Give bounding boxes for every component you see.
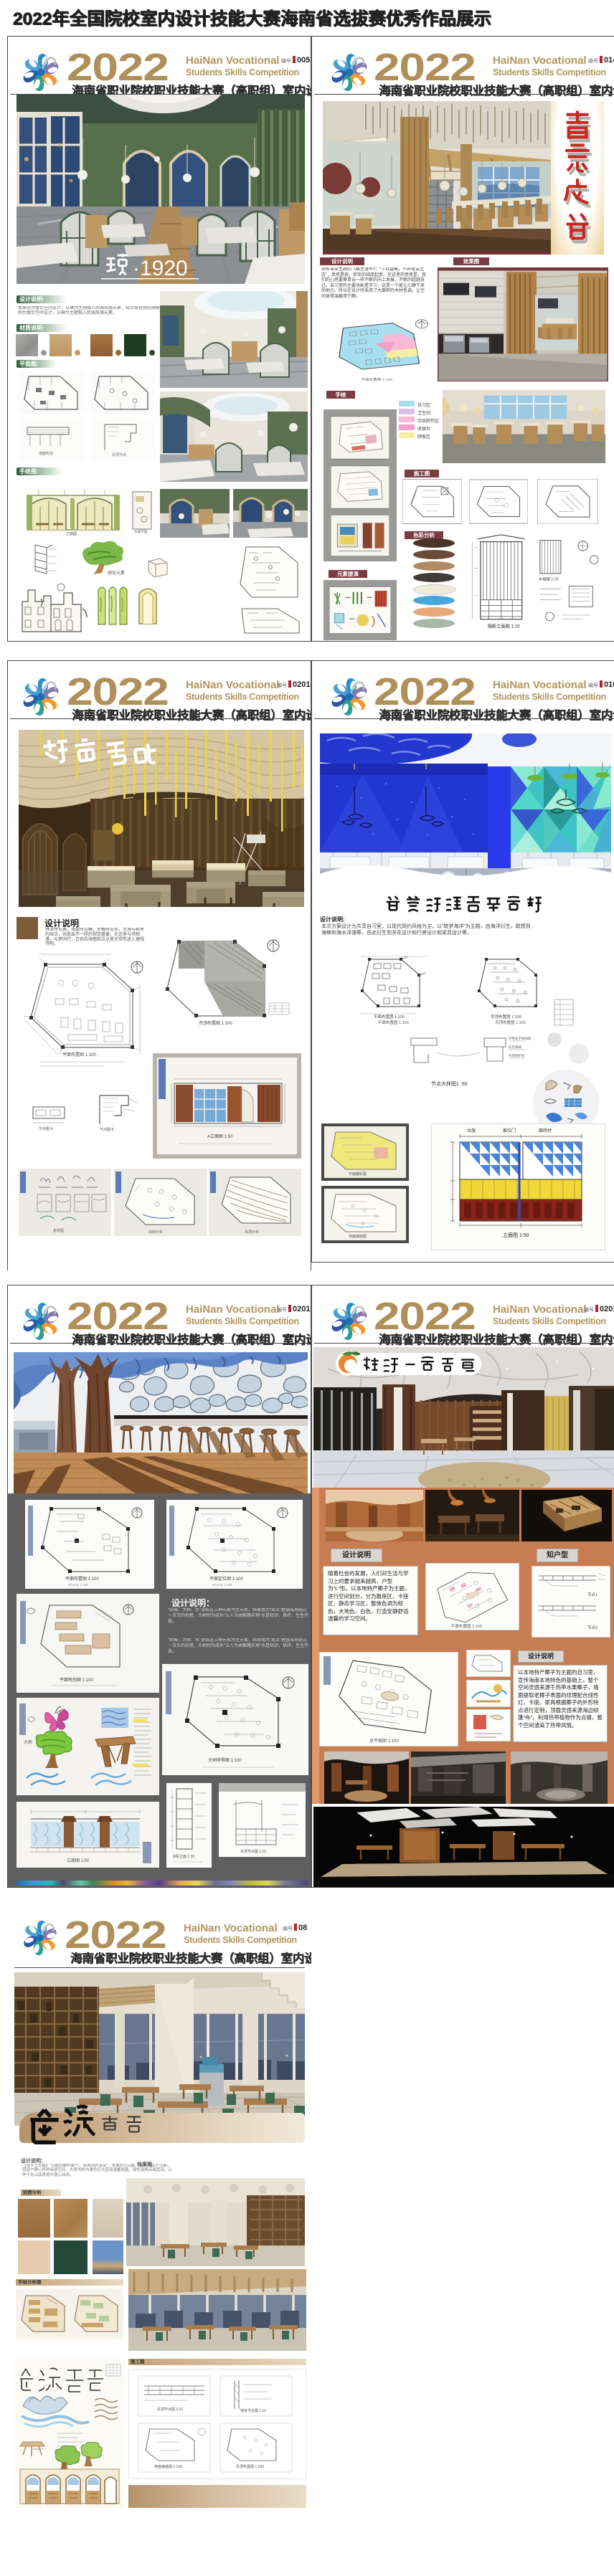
svg-text:素材图: 素材图	[53, 1228, 64, 1233]
svg-text:台度: 台度	[467, 1128, 476, 1133]
svg-text:吊顶节点图 1:10: 吊顶节点图 1:10	[240, 1850, 266, 1854]
svg-text:木格栅 1:20: 木格栅 1:20	[539, 576, 559, 582]
svg-text:立面图: 立面图	[66, 531, 77, 536]
svg-text:平面定位图 1:100: 平面定位图 1:100	[209, 1576, 243, 1582]
svg-text:SCALE 1:100: SCALE 1:100	[68, 1583, 88, 1587]
svg-text:立面图 1:50: 立面图 1:50	[503, 1232, 529, 1238]
svg-text:立面图 1:50: 立面图 1:50	[67, 1858, 90, 1863]
svg-text:平面布置图 1:100: 平面布置图 1:100	[62, 1052, 96, 1058]
svg-text:不锈钢护栏: 不锈钢护栏	[509, 1053, 525, 1058]
svg-text:吊顶节点: 吊顶节点	[112, 453, 126, 457]
svg-text:平面税划图 1:100: 平面税划图 1:100	[60, 1677, 93, 1683]
svg-text:节点图 B: 节点图 B	[100, 1128, 114, 1132]
svg-text:隔断立面图 1:20: 隔断立面图 1:20	[487, 622, 520, 629]
svg-text:地面铺装图 1:100: 地面铺装图 1:100	[154, 2464, 182, 2469]
svg-text:大树哆俱图 1:100: 大树哆俱图 1:100	[208, 1757, 242, 1763]
svg-text:大树: 大树	[24, 1739, 32, 1745]
svg-text:地面构造: 地面构造	[39, 451, 53, 456]
svg-text:吊顶布置图 1:100: 吊顶布置图 1:100	[236, 2464, 264, 2469]
svg-text:铲物化学璃璃板: 铲物化学璃璃板	[509, 1036, 532, 1041]
svg-text:包厢平面: 包厢平面	[134, 529, 147, 533]
svg-text:书柜立面 1:30: 书柜立面 1:30	[172, 1854, 194, 1859]
svg-text:吊顶布置图 1:100: 吊顶布置图 1:100	[491, 1014, 521, 1020]
svg-text:节点1: 节点1	[587, 1592, 598, 1597]
svg-text:总平面图 1:100: 总平面图 1:100	[369, 1738, 399, 1744]
svg-text:节点2: 节点2	[587, 1625, 598, 1630]
svg-text:吊顶节点图 1:10: 吊顶节点图 1:10	[157, 2408, 183, 2412]
svg-text:动线分析: 动线分析	[148, 1230, 163, 1235]
svg-text:节点图 A: 节点图 A	[39, 1127, 53, 1131]
svg-text:面砖材: 面砖材	[539, 1128, 552, 1133]
svg-text:墙身节点图 1:10: 墙身节点图 1:10	[240, 2408, 266, 2413]
svg-text:平面布置图 1:100: 平面布置图 1:100	[374, 1014, 405, 1020]
svg-text:推拉门: 推拉门	[503, 1128, 516, 1133]
svg-text:平面纔彩图: 平面纔彩图	[349, 1171, 367, 1177]
svg-text:A立面图 1:50: A立面图 1:50	[207, 1133, 233, 1139]
svg-text:SCALE 1:100: SCALE 1:100	[212, 1583, 232, 1587]
svg-text:彩色璃璃: 彩色璃璃	[509, 1045, 521, 1050]
svg-text:吊顶分析: 吊顶分析	[245, 1230, 259, 1235]
svg-text:·1920: ·1920	[133, 257, 188, 280]
svg-text:吊顶布置图 1:100: 吊顶布置图 1:100	[199, 1020, 232, 1026]
svg-text:平面布置图 1:100: 平面布置图 1:100	[65, 1576, 99, 1582]
svg-text:地面铺装图: 地面铺装图	[349, 1234, 367, 1239]
svg-text:平面布置图 1:100: 平面布置图 1:100	[451, 1623, 482, 1629]
svg-text:绰化元素: 绰化元素	[108, 570, 125, 576]
